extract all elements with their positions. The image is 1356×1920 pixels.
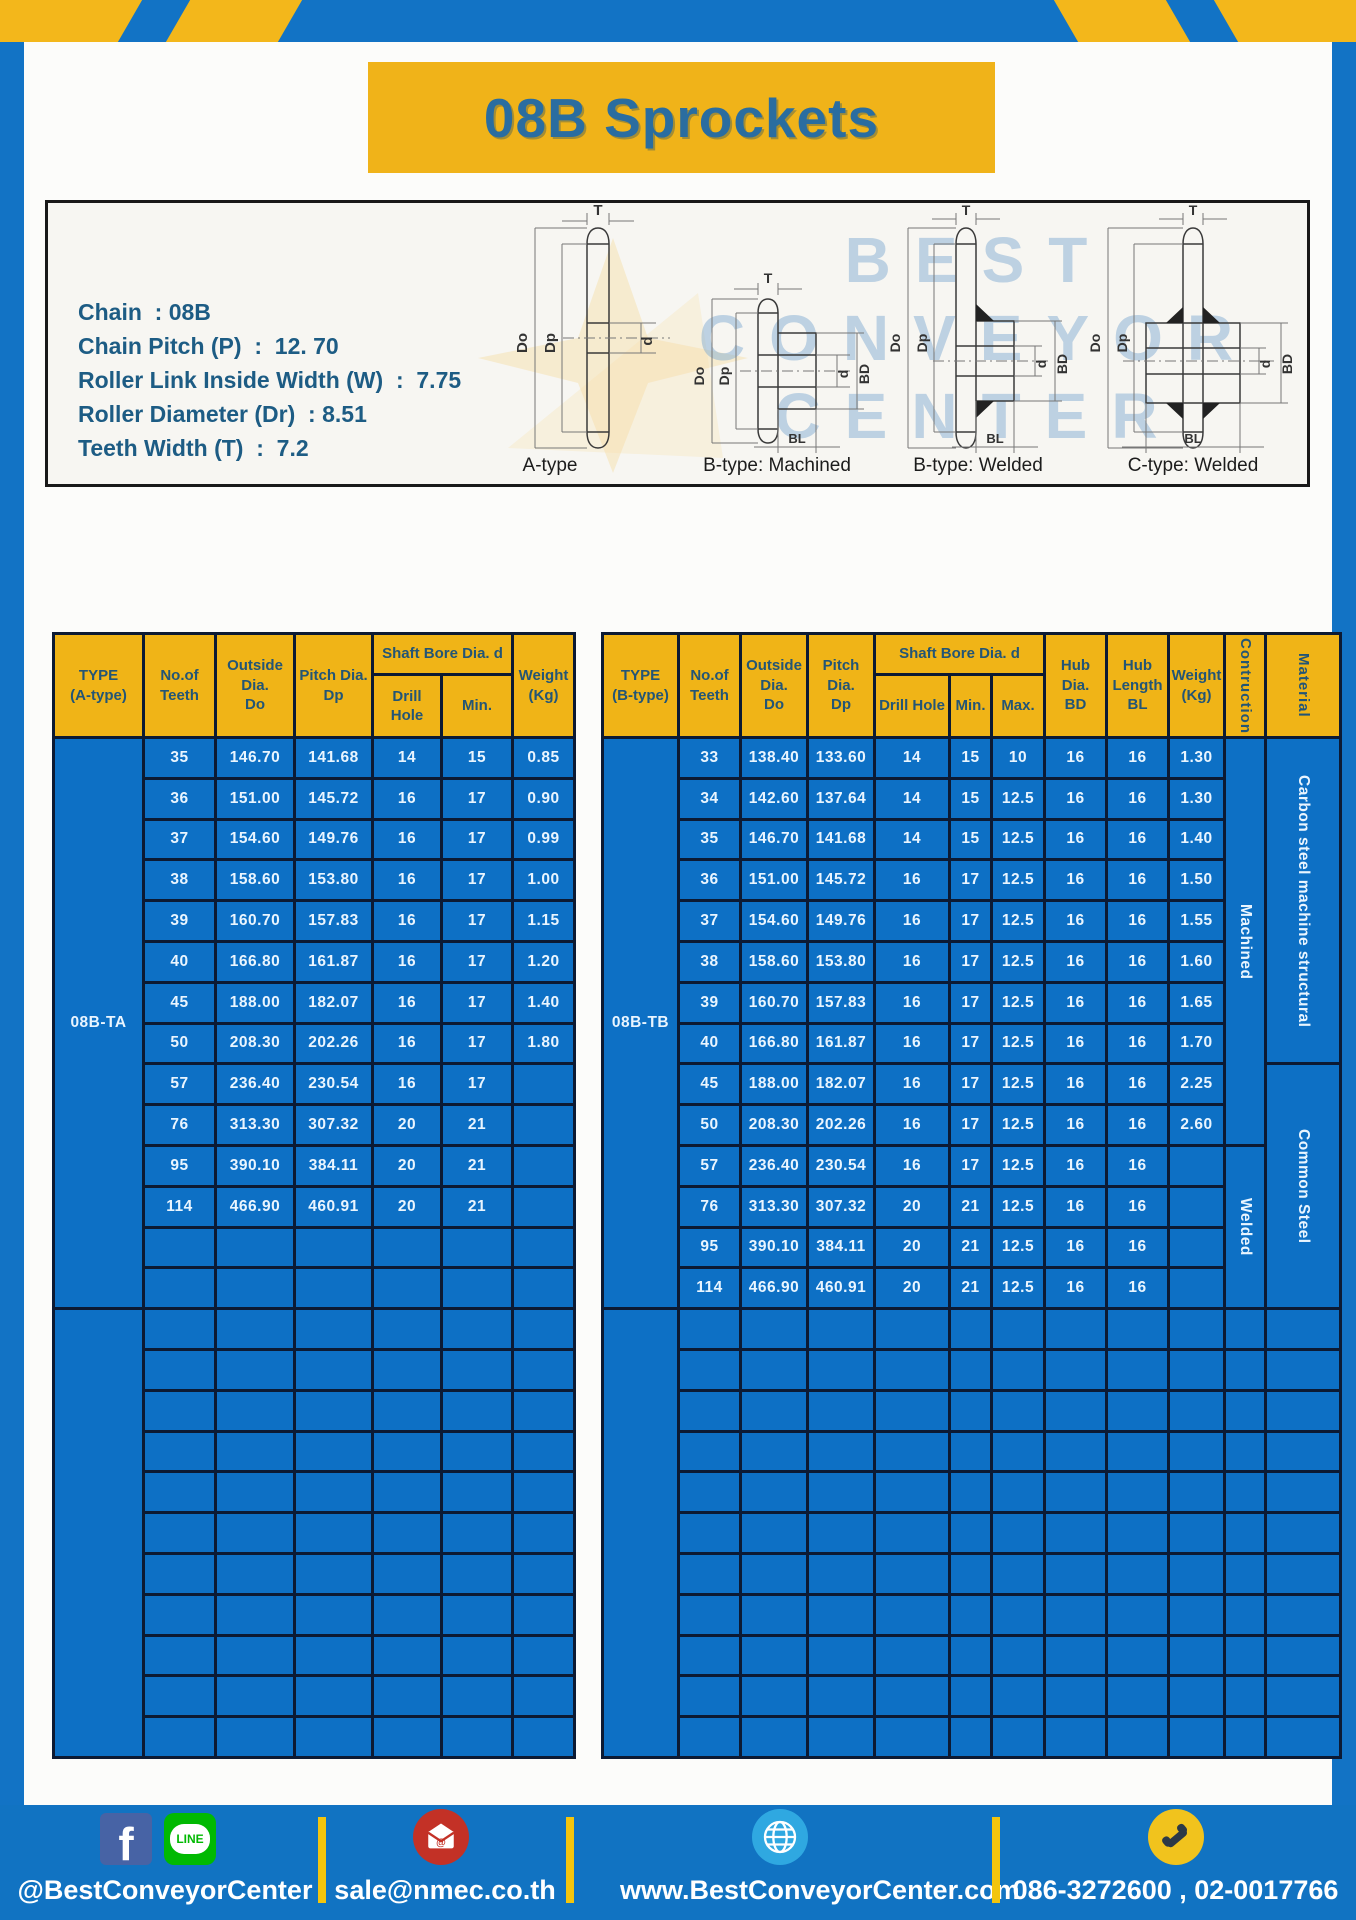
table-cell: 17 <box>442 941 513 982</box>
table-cell: 38 <box>679 941 741 982</box>
table-cell <box>950 1553 992 1594</box>
table-cell <box>442 1513 513 1554</box>
table-cell: 384.11 <box>295 1145 373 1186</box>
table-cell <box>679 1349 741 1390</box>
dim-label-bd: BD <box>1054 354 1070 374</box>
table-cell <box>513 1186 575 1227</box>
table-cell <box>442 1390 513 1431</box>
table-cell: 16 <box>1045 982 1107 1023</box>
table-cell <box>216 1717 295 1758</box>
sprocket-drawings: T Do Dp d <box>48 203 1307 484</box>
table-cell <box>679 1594 741 1635</box>
table-cell <box>950 1431 992 1472</box>
table-cell <box>295 1431 373 1472</box>
table-cell: 384.11 <box>808 1227 875 1268</box>
table-cell: 39 <box>144 901 216 942</box>
col-header-drill-hole: Drill Hole <box>875 675 950 738</box>
table-cell: 16 <box>1045 738 1107 779</box>
table-cell: 16 <box>373 901 442 942</box>
dim-label-t: T <box>593 203 602 219</box>
table-cell: 12.5 <box>992 778 1045 819</box>
table-cell <box>295 1349 373 1390</box>
construction-cell <box>1225 1472 1266 1513</box>
material-cell <box>1266 1472 1341 1513</box>
table-cell <box>1107 1349 1169 1390</box>
table-cell: 17 <box>442 982 513 1023</box>
table-cell <box>1045 1553 1107 1594</box>
table-cell: 45 <box>144 982 216 1023</box>
table-cell: 57 <box>144 1064 216 1105</box>
table-cell: 202.26 <box>808 1105 875 1146</box>
table-cell <box>1107 1553 1169 1594</box>
table-cell <box>216 1227 295 1268</box>
table-cell: 161.87 <box>808 1023 875 1064</box>
hazard-stripe <box>0 0 146 42</box>
table-cell <box>513 1472 575 1513</box>
table-cell: 17 <box>442 860 513 901</box>
table-cell <box>741 1349 808 1390</box>
table-cell: 188.00 <box>216 982 295 1023</box>
table-cell: 1.40 <box>1169 819 1225 860</box>
table-row <box>603 1431 1341 1472</box>
col-header-type: TYPE (B-type) <box>603 634 679 738</box>
table-cell: 76 <box>144 1105 216 1146</box>
material-cell <box>1266 1513 1341 1554</box>
table-cell <box>513 1064 575 1105</box>
table-cell: 460.91 <box>295 1186 373 1227</box>
table-cell <box>808 1472 875 1513</box>
table-cell: 16 <box>1107 860 1169 901</box>
table-cell: 230.54 <box>808 1145 875 1186</box>
table-cell: 20 <box>373 1105 442 1146</box>
table-cell <box>295 1472 373 1513</box>
table-cell <box>992 1472 1045 1513</box>
col-header-weight: Weight (Kg) <box>1169 634 1225 738</box>
table-cell: 114 <box>144 1186 216 1227</box>
col-header-shaft-bore: Shaft Bore Dia. d <box>373 634 513 675</box>
table-cell: 158.60 <box>741 941 808 982</box>
col-header-max: Max. <box>992 675 1045 738</box>
table-cell: 142.60 <box>741 778 808 819</box>
table-cell: 16 <box>1045 778 1107 819</box>
table-cell: 57 <box>679 1145 741 1186</box>
table-cell <box>1169 1513 1225 1554</box>
table-row <box>603 1553 1341 1594</box>
table-cell: 17 <box>442 778 513 819</box>
table-cell: 17 <box>950 1064 992 1105</box>
diagram-panel: BEST CONVEYOR CENTER Chain : 08B Chain P… <box>45 200 1310 487</box>
table-cell: 17 <box>442 1064 513 1105</box>
table-cell <box>144 1553 216 1594</box>
table-cell: 0.85 <box>513 738 575 779</box>
construction-cell <box>1225 1594 1266 1635</box>
table-cell <box>295 1635 373 1676</box>
table-cell <box>144 1227 216 1268</box>
drawing-c-type-welded: T Do Dp d BD BL <box>1087 203 1295 453</box>
table-cell <box>1169 1717 1225 1758</box>
table-cell <box>950 1472 992 1513</box>
table-cell <box>373 1472 442 1513</box>
col-header-pitch-dia: Pitch Dia. Dp <box>808 634 875 738</box>
table-cell <box>1169 1186 1225 1227</box>
table-row: 08B-TB33138.40133.6014151016161.30Machin… <box>603 738 1341 779</box>
table-cell: 145.72 <box>808 860 875 901</box>
table-cell: 0.90 <box>513 778 575 819</box>
table-cell <box>1045 1390 1107 1431</box>
table-cell: 20 <box>373 1186 442 1227</box>
table-cell: 16 <box>1107 1105 1169 1146</box>
globe-icon <box>752 1809 808 1865</box>
construction-cell <box>1225 1431 1266 1472</box>
table-cell <box>373 1349 442 1390</box>
table-cell <box>875 1390 950 1431</box>
table-cell: 460.91 <box>808 1268 875 1309</box>
table-cell <box>373 1309 442 1350</box>
table-cell <box>992 1717 1045 1758</box>
construction-cell <box>1225 1390 1266 1431</box>
line-icon-label: LINE <box>170 1824 210 1854</box>
table-cell <box>1045 1513 1107 1554</box>
table-cell <box>1169 1309 1225 1350</box>
table-cell <box>373 1390 442 1431</box>
table-cell <box>1169 1227 1225 1268</box>
email-icon: @ <box>413 1809 469 1865</box>
table-cell: 157.83 <box>295 901 373 942</box>
caption-b-welded: B-type: Welded <box>913 455 1043 477</box>
table-cell: 146.70 <box>741 819 808 860</box>
hazard-stripe <box>1210 0 1356 42</box>
col-header-min: Min. <box>442 675 513 738</box>
table-cell <box>1107 1635 1169 1676</box>
table-cell <box>373 1553 442 1594</box>
table-cell: 16 <box>1107 1186 1169 1227</box>
dim-label-d: d <box>639 336 656 345</box>
caption-a-type: A-type <box>523 455 578 477</box>
table-cell: 36 <box>679 860 741 901</box>
phone-icon <box>1148 1809 1204 1865</box>
table-cell: 20 <box>875 1186 950 1227</box>
table-cell: 17 <box>442 901 513 942</box>
table-cell <box>1107 1472 1169 1513</box>
dim-label-bd: BD <box>1279 354 1295 374</box>
hazard-top-bar <box>0 0 1356 42</box>
table-cell <box>992 1676 1045 1717</box>
material-cell <box>1266 1717 1341 1758</box>
material-cell <box>1266 1594 1341 1635</box>
table-cell <box>442 1553 513 1594</box>
table-cell: 20 <box>875 1268 950 1309</box>
dim-label-do: Do <box>1087 334 1103 353</box>
table-cell <box>875 1676 950 1717</box>
table-cell <box>1107 1717 1169 1758</box>
table-cell: 154.60 <box>741 901 808 942</box>
table-cell <box>144 1717 216 1758</box>
table-cell <box>741 1309 808 1350</box>
table-cell <box>373 1676 442 1717</box>
table-cell <box>373 1594 442 1635</box>
table-cell: 37 <box>144 819 216 860</box>
table-cell <box>808 1431 875 1472</box>
dim-label-bl: BL <box>788 431 805 446</box>
table-cell <box>875 1635 950 1676</box>
material-cell <box>1266 1553 1341 1594</box>
table-cell <box>679 1472 741 1513</box>
construction-cell: Machined <box>1225 738 1266 1146</box>
footer-divider <box>566 1817 574 1903</box>
table-row: 08B-TA35146.70141.6814150.85 <box>54 738 575 779</box>
table-cell <box>144 1309 216 1350</box>
line-icon: LINE <box>164 1813 216 1865</box>
table-cell <box>1107 1390 1169 1431</box>
table-cell <box>1045 1431 1107 1472</box>
table-cell: 17 <box>950 1105 992 1146</box>
table-cell <box>875 1594 950 1635</box>
table-cell: 15 <box>950 819 992 860</box>
table-cell <box>1107 1676 1169 1717</box>
table-cell <box>216 1349 295 1390</box>
dim-label-t: T <box>764 270 773 286</box>
table-cell: 1.50 <box>1169 860 1225 901</box>
table-cell <box>373 1227 442 1268</box>
col-header-construction: Contruction <box>1225 634 1266 738</box>
table-cell: 16 <box>1107 1064 1169 1105</box>
table-cell: 158.60 <box>216 860 295 901</box>
table-cell: 313.30 <box>216 1105 295 1146</box>
table-cell <box>216 1553 295 1594</box>
table-cell <box>741 1594 808 1635</box>
table-cell: 16 <box>1045 1186 1107 1227</box>
table-cell <box>373 1635 442 1676</box>
table-cell: 307.32 <box>295 1105 373 1146</box>
material-cell <box>1266 1349 1341 1390</box>
table-cell <box>144 1268 216 1309</box>
table-a-type: TYPE (A-type) No.of Teeth Outside Dia. D… <box>52 632 576 1759</box>
table-row <box>603 1594 1341 1635</box>
table-cell <box>808 1513 875 1554</box>
table-cell <box>875 1717 950 1758</box>
table-cell: 146.70 <box>216 738 295 779</box>
table-cell <box>513 1105 575 1146</box>
table-cell <box>992 1349 1045 1390</box>
drawing-b-type-welded: T Do Dp d BD BL <box>887 203 1070 453</box>
table-cell <box>1107 1513 1169 1554</box>
table-cell <box>144 1635 216 1676</box>
table-cell <box>1169 1635 1225 1676</box>
dim-label-bl: BL <box>986 431 1003 446</box>
table-cell <box>808 1390 875 1431</box>
table-cell <box>992 1309 1045 1350</box>
table-cell: 16 <box>1107 1145 1169 1186</box>
table-cell <box>295 1309 373 1350</box>
table-cell: 12.5 <box>992 1268 1045 1309</box>
drawing-a-type: T Do Dp d <box>514 203 670 448</box>
table-cell: 390.10 <box>741 1227 808 1268</box>
dim-label-d: d <box>1257 360 1273 369</box>
table-cell: 16 <box>1107 982 1169 1023</box>
col-header-material: Material <box>1266 634 1341 738</box>
table-cell: 2.25 <box>1169 1064 1225 1105</box>
table-cell <box>513 1717 575 1758</box>
table-cell: 1.40 <box>513 982 575 1023</box>
table-cell <box>442 1268 513 1309</box>
table-cell: 166.80 <box>216 941 295 982</box>
table-b-type: TYPE (B-type) No.of Teeth Outside Dia. D… <box>601 632 1342 1759</box>
material-cell <box>1266 1431 1341 1472</box>
col-header-min: Min. <box>950 675 992 738</box>
dim-label-dp: Dp <box>542 333 559 353</box>
type-cell: 08B-TA <box>54 738 144 1309</box>
table-cell: 40 <box>679 1023 741 1064</box>
col-header-shaft-bore: Shaft Bore Dia. d <box>875 634 1045 675</box>
table-cell: 12.5 <box>992 1105 1045 1146</box>
table-cell <box>1169 1431 1225 1472</box>
col-header-outside-dia: Outside Dia. Do <box>216 634 295 738</box>
table-cell: 1.55 <box>1169 901 1225 942</box>
table-cell <box>144 1390 216 1431</box>
table-row: 57236.40230.54161712.51616Welded <box>603 1145 1341 1186</box>
table-cell <box>950 1676 992 1717</box>
table-cell <box>1045 1676 1107 1717</box>
table-cell: 236.40 <box>216 1064 295 1105</box>
construction-cell: Welded <box>1225 1145 1266 1308</box>
table-cell <box>1045 1635 1107 1676</box>
table-cell: 166.80 <box>741 1023 808 1064</box>
table-cell: 208.30 <box>216 1023 295 1064</box>
table-row <box>603 1513 1341 1554</box>
table-cell <box>950 1513 992 1554</box>
table-cell: 202.26 <box>295 1023 373 1064</box>
table-cell: 1.30 <box>1169 778 1225 819</box>
table-cell: 16 <box>1107 901 1169 942</box>
table-cell <box>741 1717 808 1758</box>
table-cell <box>513 1349 575 1390</box>
page-title: 08B Sprockets <box>484 86 879 150</box>
type-cell <box>54 1309 144 1758</box>
table-cell: 208.30 <box>741 1105 808 1146</box>
col-header-hub-length: Hub Length BL <box>1107 634 1169 738</box>
table-cell <box>875 1309 950 1350</box>
title-banner: 08B Sprockets <box>368 62 995 173</box>
table-cell <box>875 1553 950 1594</box>
table-cell <box>442 1309 513 1350</box>
table-cell <box>442 1717 513 1758</box>
table-cell <box>875 1513 950 1554</box>
table-cell: 16 <box>373 860 442 901</box>
table-cell <box>373 1268 442 1309</box>
table-cell: 151.00 <box>216 778 295 819</box>
table-cell: 1.15 <box>513 901 575 942</box>
table-cell: 76 <box>679 1186 741 1227</box>
table-cell <box>216 1513 295 1554</box>
table-cell: 153.80 <box>295 860 373 901</box>
table-cell: 12.5 <box>992 941 1045 982</box>
table-cell: 16 <box>373 941 442 982</box>
table-cell: 16 <box>1045 1268 1107 1309</box>
table-cell: 35 <box>144 738 216 779</box>
table-cell: 36 <box>144 778 216 819</box>
table-cell <box>295 1390 373 1431</box>
table-cell <box>741 1513 808 1554</box>
table-cell <box>1107 1309 1169 1350</box>
table-cell <box>513 1513 575 1554</box>
table-cell <box>679 1390 741 1431</box>
table-cell: 466.90 <box>741 1268 808 1309</box>
construction-cell <box>1225 1717 1266 1758</box>
dim-label-dp: Dp <box>914 334 930 353</box>
table-cell <box>1169 1390 1225 1431</box>
table-cell: 15 <box>442 738 513 779</box>
table-cell <box>442 1635 513 1676</box>
table-cell <box>679 1553 741 1594</box>
table-cell: 16 <box>373 1064 442 1105</box>
table-cell <box>216 1676 295 1717</box>
table-cell <box>808 1553 875 1594</box>
table-cell <box>442 1594 513 1635</box>
table-cell: 35 <box>679 819 741 860</box>
table-cell <box>1045 1309 1107 1350</box>
table-cell <box>373 1717 442 1758</box>
contact-footer: f LINE @BestConveyorCenter @ sale@nmec.c… <box>0 1805 1356 1920</box>
table-cell <box>1045 1717 1107 1758</box>
table-cell: 20 <box>373 1145 442 1186</box>
table-cell: 16 <box>1107 819 1169 860</box>
table-cell <box>1045 1594 1107 1635</box>
table-cell: 45 <box>679 1064 741 1105</box>
table-cell <box>1107 1594 1169 1635</box>
construction-cell <box>1225 1309 1266 1350</box>
col-header-teeth: No.of Teeth <box>679 634 741 738</box>
dim-label-bd: BD <box>856 364 872 384</box>
table-cell <box>1045 1472 1107 1513</box>
table-cell <box>513 1594 575 1635</box>
dim-label-dp: Dp <box>716 367 732 386</box>
table-cell: 1.60 <box>1169 941 1225 982</box>
dim-label-do: Do <box>514 333 531 353</box>
table-cell <box>1169 1268 1225 1309</box>
table-cell <box>992 1553 1045 1594</box>
table-cell <box>950 1309 992 1350</box>
table-cell: 16 <box>1045 1105 1107 1146</box>
construction-cell <box>1225 1635 1266 1676</box>
table-cell <box>679 1717 741 1758</box>
table-cell: 466.90 <box>216 1186 295 1227</box>
col-header-drill-hole: Drill Hole <box>373 675 442 738</box>
type-cell: 08B-TB <box>603 738 679 1309</box>
table-cell: 151.00 <box>741 860 808 901</box>
table-cell: 188.00 <box>741 1064 808 1105</box>
table-cell <box>295 1553 373 1594</box>
table-cell: 0.99 <box>513 819 575 860</box>
table-cell: 1.00 <box>513 860 575 901</box>
table-cell: 141.68 <box>808 819 875 860</box>
table-cell: 17 <box>950 982 992 1023</box>
table-cell: 17 <box>442 819 513 860</box>
table-cell <box>679 1635 741 1676</box>
facebook-icon: f <box>100 1813 152 1865</box>
col-header-teeth: No.of Teeth <box>144 634 216 738</box>
phone-numbers: 086-3272600 , 02-0017766 <box>995 1875 1356 1906</box>
table-cell: 160.70 <box>741 982 808 1023</box>
table-cell: 95 <box>144 1145 216 1186</box>
table-cell <box>442 1227 513 1268</box>
table-cell: 16 <box>1045 941 1107 982</box>
table-cell <box>1045 1349 1107 1390</box>
table-cell: 15 <box>950 778 992 819</box>
construction-cell <box>1225 1676 1266 1717</box>
dim-label-d: d <box>835 370 851 379</box>
svg-text:@: @ <box>436 1838 446 1849</box>
dim-label-bl: BL <box>1184 431 1201 446</box>
